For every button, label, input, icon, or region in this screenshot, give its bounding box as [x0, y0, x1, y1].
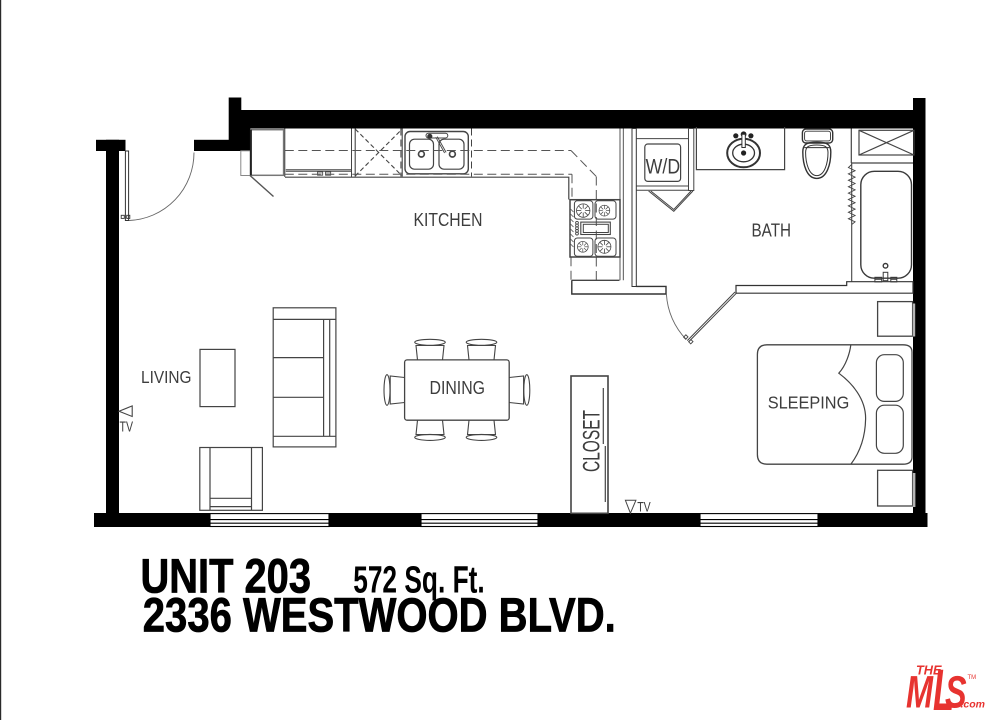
- svg-text:M: M: [906, 668, 934, 717]
- svg-text:DINING: DINING: [430, 377, 486, 398]
- svg-text:W/D: W/D: [646, 155, 681, 179]
- svg-text:TV: TV: [120, 419, 134, 435]
- svg-text:LIVING: LIVING: [141, 367, 192, 387]
- svg-text:.com: .com: [961, 699, 986, 711]
- svg-text:CLOSET: CLOSET: [579, 410, 606, 472]
- svg-text:KITCHEN: KITCHEN: [414, 210, 483, 230]
- svg-text:TM: TM: [968, 675, 977, 681]
- svg-text:2336 WESTWOOD BLVD.: 2336 WESTWOOD BLVD.: [143, 588, 616, 642]
- svg-text:BATH: BATH: [752, 221, 792, 241]
- svg-text:TV: TV: [637, 500, 651, 515]
- svg-text:SLEEPING: SLEEPING: [768, 393, 850, 413]
